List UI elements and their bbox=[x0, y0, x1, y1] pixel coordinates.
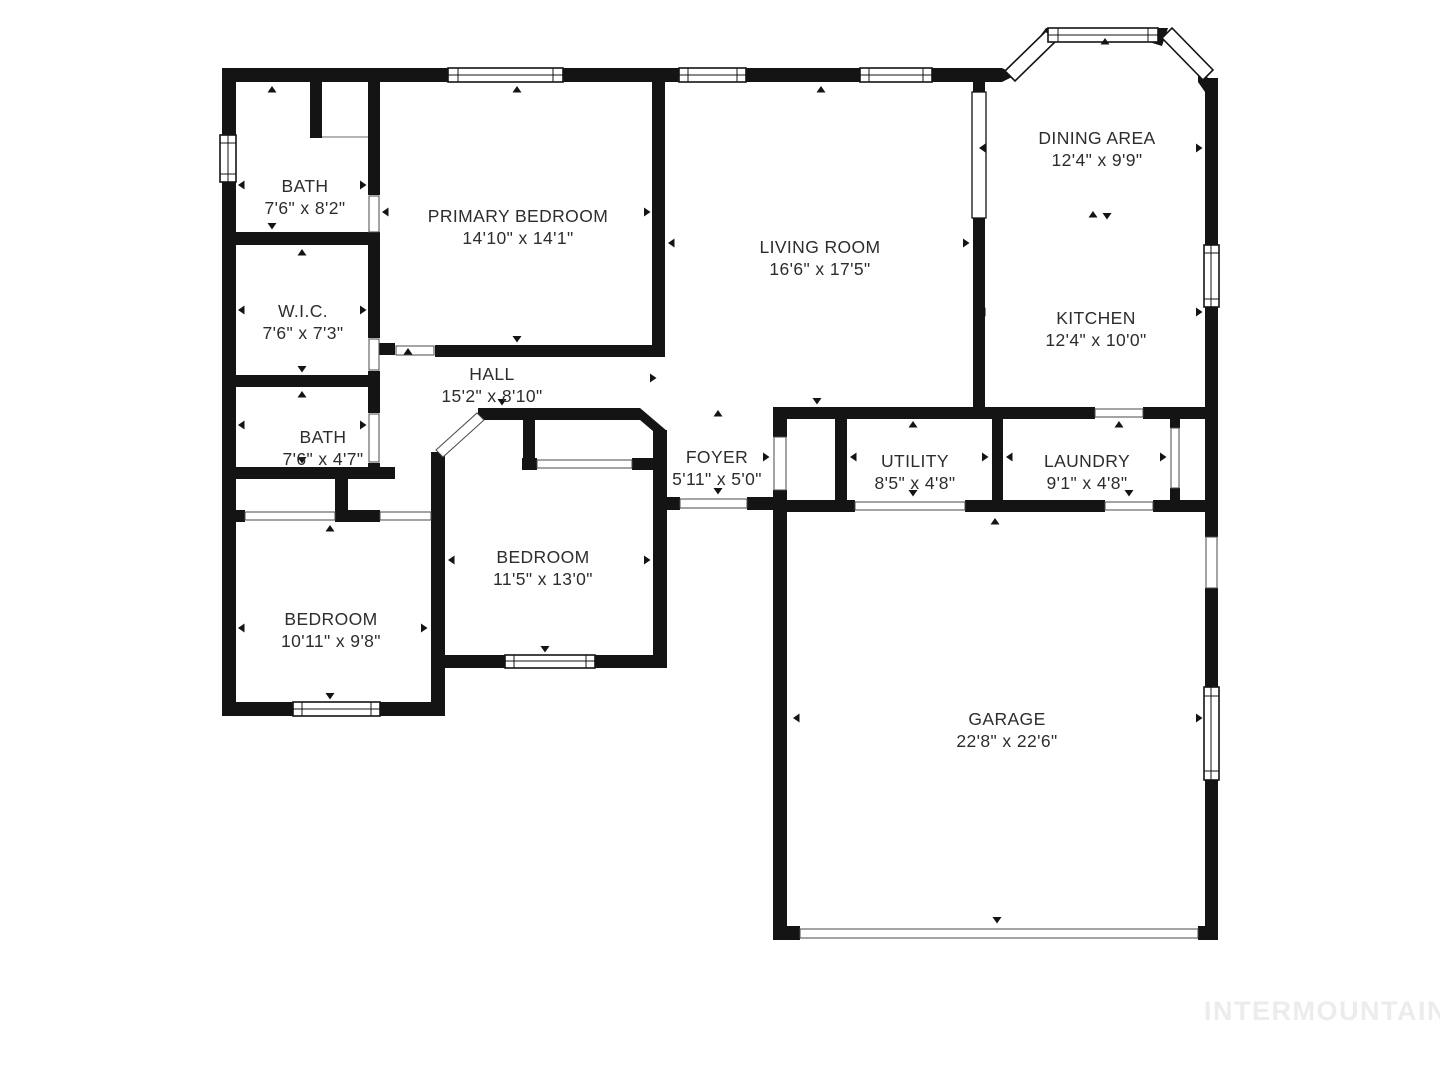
side-door bbox=[1206, 537, 1217, 588]
dimension-tick bbox=[298, 366, 307, 373]
wall-segment bbox=[746, 68, 860, 82]
room-label-foyer: FOYER bbox=[686, 447, 748, 467]
door-opening bbox=[369, 414, 379, 462]
window bbox=[505, 655, 595, 668]
room-dims-bedroom1: 10'11" x 9'8" bbox=[281, 631, 381, 651]
dimension-tick bbox=[1103, 213, 1112, 220]
dimension-tick bbox=[238, 181, 245, 190]
wall-segment bbox=[652, 82, 665, 357]
dimension-tick bbox=[1196, 308, 1203, 317]
watermark: INTERMOUNTAIN bbox=[1204, 996, 1440, 1027]
wall-segment bbox=[1198, 926, 1218, 940]
bay-window bbox=[1005, 28, 1213, 81]
wall-segment bbox=[435, 345, 660, 357]
dimension-tick bbox=[298, 249, 307, 256]
dimension-tick bbox=[1160, 453, 1167, 462]
room-dims-bath2: 7'6" x 4'7" bbox=[283, 449, 364, 469]
dimension-tick bbox=[326, 525, 335, 532]
room-dims-wic: 7'6" x 7'3" bbox=[263, 323, 344, 343]
wall-segment bbox=[563, 68, 679, 82]
floor-plan-drawing: BATH 7'6" x 8'2" PRIMARY BEDROOM 14'10" … bbox=[0, 0, 1440, 1080]
room-label-primary-bedroom: PRIMARY BEDROOM bbox=[428, 206, 608, 226]
room-label-hall: HALL bbox=[469, 364, 514, 384]
dimension-tick bbox=[513, 86, 522, 93]
dimension-tick bbox=[650, 374, 657, 383]
room-dims-bath1: 7'6" x 8'2" bbox=[265, 198, 346, 218]
window bbox=[1204, 687, 1219, 780]
room-label-kitchen: KITCHEN bbox=[1056, 308, 1136, 328]
door-opening bbox=[855, 502, 965, 510]
wall-segment bbox=[653, 497, 680, 510]
door-opening-angled bbox=[436, 413, 484, 457]
room-label-living-room: LIVING ROOM bbox=[759, 237, 880, 257]
dimension-tick bbox=[382, 208, 389, 217]
room-dims-laundry: 9'1" x 4'8" bbox=[1047, 473, 1128, 493]
dimension-tick bbox=[360, 306, 367, 315]
dimension-tick bbox=[360, 421, 367, 430]
dimension-tick bbox=[298, 391, 307, 398]
wall-segment bbox=[973, 82, 985, 92]
wall-segment bbox=[236, 510, 245, 522]
dimension-tick bbox=[993, 917, 1002, 924]
wall-segment bbox=[1205, 588, 1218, 687]
wall-segment bbox=[222, 182, 236, 716]
wall-segment bbox=[522, 458, 537, 470]
wall-segment bbox=[348, 510, 380, 522]
wall-segment bbox=[335, 479, 348, 522]
door-opening bbox=[1171, 428, 1179, 488]
closet-slider bbox=[537, 460, 632, 468]
dimension-tick bbox=[1196, 144, 1203, 153]
door-opening bbox=[396, 346, 434, 355]
room-dims-primary-bedroom: 14'10" x 14'1" bbox=[462, 228, 573, 248]
dimension-tick bbox=[448, 556, 455, 565]
wall-segment bbox=[310, 82, 322, 138]
wall-segment bbox=[773, 407, 1095, 419]
dimension-tick bbox=[421, 624, 428, 633]
wall-segment bbox=[965, 500, 1105, 512]
window bbox=[1204, 245, 1219, 307]
dimension-tick bbox=[644, 556, 651, 565]
dimension-tick bbox=[541, 646, 550, 653]
dimension-tick bbox=[238, 306, 245, 315]
wall-segment bbox=[378, 343, 395, 355]
room-label-wic: W.I.C. bbox=[278, 301, 328, 321]
room-dims-utility: 8'5" x 4'8" bbox=[875, 473, 956, 493]
doors bbox=[245, 92, 1217, 938]
wall-segment bbox=[222, 68, 448, 82]
room-dims-kitchen: 12'4" x 10'0" bbox=[1045, 330, 1146, 350]
wall-segment bbox=[653, 430, 667, 668]
wall-segment bbox=[222, 702, 293, 716]
wall-segment bbox=[445, 655, 505, 668]
room-label-laundry: LAUNDRY bbox=[1044, 451, 1130, 471]
window bbox=[679, 68, 746, 82]
room-dims-bedroom2: 11'5" x 13'0" bbox=[493, 569, 593, 589]
cased-opening bbox=[972, 92, 986, 218]
garage-door bbox=[800, 929, 1198, 938]
wall-segment bbox=[932, 68, 1002, 82]
room-dims-living-room: 16'6" x 17'5" bbox=[769, 259, 870, 279]
closet-slider bbox=[380, 512, 431, 520]
dimension-tick bbox=[268, 223, 277, 230]
wall-segment bbox=[1170, 488, 1180, 502]
dimension-tick bbox=[1089, 211, 1098, 218]
wall-segment bbox=[236, 375, 380, 387]
dimension-tick bbox=[668, 239, 675, 248]
dimension-tick bbox=[817, 86, 826, 93]
room-label-bedroom2: BEDROOM bbox=[496, 547, 589, 567]
dimension-tick bbox=[238, 421, 245, 430]
dimension-tick bbox=[1115, 421, 1124, 428]
wall-segment bbox=[431, 452, 445, 716]
dimension-tick bbox=[850, 453, 857, 462]
dimension-tick bbox=[644, 208, 651, 217]
wall-segment bbox=[992, 419, 1003, 500]
room-dims-hall: 15'2" x 8'10" bbox=[441, 386, 542, 406]
dimension-tick bbox=[1196, 714, 1203, 723]
dimension-tick bbox=[991, 518, 1000, 525]
room-label-dining-area: DINING AREA bbox=[1038, 128, 1155, 148]
window bbox=[220, 135, 236, 182]
room-label-bedroom1: BEDROOM bbox=[284, 609, 377, 629]
window bbox=[293, 702, 380, 716]
door-opening bbox=[369, 339, 379, 370]
room-dims-dining-area: 12'4" x 9'9" bbox=[1051, 150, 1142, 170]
dimension-tick bbox=[793, 714, 800, 723]
wall-segment bbox=[1170, 415, 1180, 428]
wall-segment bbox=[1205, 307, 1218, 420]
wall-segment bbox=[236, 232, 380, 245]
dimension-tick bbox=[238, 624, 245, 633]
dimension-tick bbox=[326, 693, 335, 700]
wall-segment bbox=[1205, 420, 1218, 537]
door-opening bbox=[1095, 409, 1143, 417]
wall-segment bbox=[368, 245, 380, 338]
dimension-tick bbox=[714, 410, 723, 417]
room-labels: BATH 7'6" x 8'2" PRIMARY BEDROOM 14'10" … bbox=[263, 128, 1156, 751]
window bbox=[860, 68, 932, 82]
door-opening bbox=[369, 196, 379, 232]
dimension-tick bbox=[360, 181, 367, 190]
dimension-tick bbox=[763, 453, 770, 462]
dimension-tick bbox=[982, 453, 989, 462]
wall-segment bbox=[787, 500, 855, 512]
wall-segment bbox=[835, 419, 847, 500]
room-dims-garage: 22'8" x 22'6" bbox=[956, 731, 1057, 751]
dimension-tick bbox=[513, 336, 522, 343]
dimension-tick bbox=[1006, 453, 1013, 462]
wall-segment bbox=[773, 926, 800, 940]
floor-plan-page: { "watermark": "INTERMOUNTAIN", "colors"… bbox=[0, 0, 1440, 1080]
room-label-bath2: BATH bbox=[300, 427, 347, 447]
room-label-utility: UTILITY bbox=[881, 451, 949, 471]
room-label-bath1: BATH bbox=[282, 176, 329, 196]
wall-segment bbox=[222, 68, 236, 135]
wall-segment bbox=[368, 82, 380, 195]
wall-segment bbox=[478, 408, 640, 420]
wall-segment bbox=[1205, 78, 1218, 245]
window bbox=[448, 68, 563, 82]
wall-segment bbox=[773, 490, 787, 940]
wall-segment bbox=[632, 458, 653, 470]
dimension-tick bbox=[909, 421, 918, 428]
dimension-tick bbox=[268, 86, 277, 93]
door-opening bbox=[774, 437, 786, 490]
dimension-tick bbox=[813, 398, 822, 405]
dimension-tick bbox=[963, 239, 970, 248]
closet-slider bbox=[245, 512, 335, 520]
door-opening bbox=[1105, 502, 1153, 510]
room-dims-foyer: 5'11" x 5'0" bbox=[672, 469, 762, 489]
front-door bbox=[680, 499, 747, 508]
wall-segment bbox=[368, 387, 380, 413]
room-label-garage: GARAGE bbox=[968, 709, 1045, 729]
wall-segment bbox=[1205, 780, 1218, 940]
